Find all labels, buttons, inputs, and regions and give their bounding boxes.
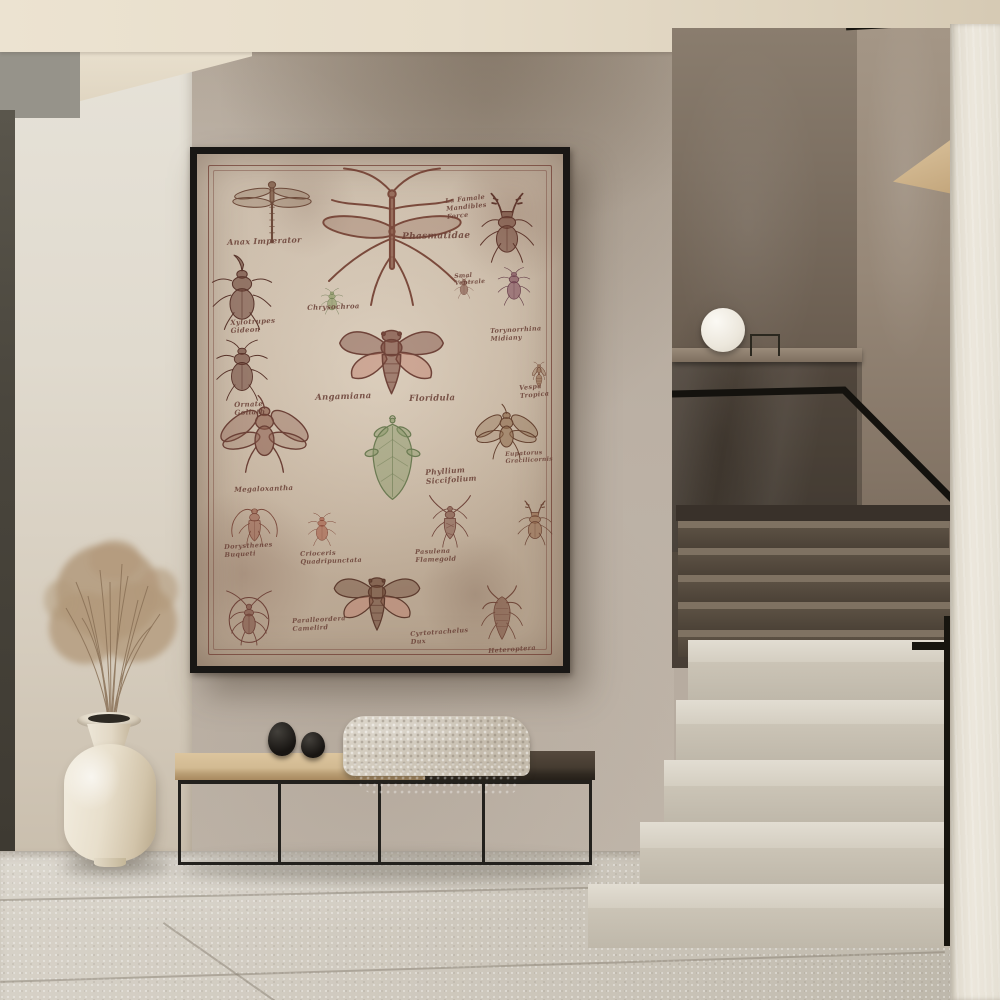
poster-label-ventrale: Smal Ventrale (454, 271, 486, 287)
poster-label-phasmatidae: Phasmatidae (402, 231, 470, 243)
large-fly-illustration (334, 578, 420, 630)
vase-opening (88, 714, 130, 723)
stag-beetle-illustration (480, 194, 533, 263)
poster-label-cyrtotrachelus: Cyrtotrachelus Dux (410, 627, 469, 647)
blanket-drape (351, 762, 521, 796)
stair-step-lower (664, 760, 950, 822)
bench-leg (278, 784, 281, 862)
vase (64, 744, 156, 862)
decor-stone-large (268, 722, 296, 756)
handrail-bracket (912, 642, 948, 650)
stair-step-lower (588, 884, 950, 948)
poster-label-floridula: Floridula (409, 393, 455, 404)
stair-step-upper (678, 521, 949, 548)
poster-label-eupatorus: Eupatorus Gracilicornis (505, 449, 553, 466)
cicada-illustration (340, 330, 444, 393)
pampas-grass (30, 530, 200, 740)
poster-frame: Anax Imperator Phasmatidae La Famale Man… (190, 147, 570, 673)
stair-step-upper (678, 602, 953, 630)
scarab-illustration (498, 268, 530, 306)
interior-scene: Anax Imperator Phasmatidae La Famale Man… (0, 0, 1000, 1000)
vase-with-dried-grass (30, 530, 200, 875)
poster-label-dorysthenes: Dorysthenes Buqueti (224, 541, 273, 559)
leaf-insect-illustration (364, 416, 420, 500)
dragonfly-illustration (233, 182, 312, 243)
poster-label-paralleordera: Paralleordera Camelird (292, 615, 346, 633)
poster-label-anax: Anax Imperator (227, 235, 302, 247)
small-stag-beetle-illustration (518, 501, 552, 545)
decor-stone-small (301, 732, 325, 758)
poster-label-pasulena: Pasulena Flamegold (415, 548, 456, 565)
water-bug-illustration (482, 586, 523, 639)
poster-label-vespa: Vespa Tropica (519, 382, 550, 400)
left-corner-wall (0, 52, 80, 118)
poster-label-crioceris: Crioceris Quadripunctata (300, 549, 362, 567)
poster-label-ornate-goliath: Ornate Goliath (234, 400, 266, 418)
poster-paper: Anax Imperator Phasmatidae La Famale Man… (197, 154, 563, 666)
poster-label-angamiana: Angamiana (315, 391, 372, 403)
left-dark-wall-edge (0, 110, 15, 852)
oval-bug-illustration (227, 591, 272, 645)
harlequin-beetle-illustration (430, 496, 471, 548)
vase-foot (94, 858, 126, 867)
stair-landing-shadow (676, 505, 953, 521)
poster-label-xylotrupes: Xylotrupes Gideon (230, 317, 276, 336)
poster-label-mandibles: La Famale Mandibles Force (445, 194, 488, 222)
stair-step-upper (678, 548, 951, 575)
poster-label-megaloxantha: Megaloxantha (234, 484, 293, 494)
stair-step-lower (640, 822, 950, 884)
goliath-beetle-illustration (217, 340, 267, 400)
poster-label-phyllium: Phyllium Siccifolium (425, 464, 477, 486)
stair-step-upper (678, 575, 953, 602)
poster-label-torynorrhina: Torynorrhina Midiany (490, 325, 542, 343)
stair-step-lower (688, 640, 950, 700)
poster-label-chrysochroa: Chrysochroa (307, 302, 360, 312)
stair-step-lower (676, 700, 950, 760)
handrail (672, 330, 953, 508)
leaf-beetle-illustration (308, 513, 335, 546)
right-foreground-wall (950, 24, 1000, 1000)
bench (170, 710, 600, 875)
